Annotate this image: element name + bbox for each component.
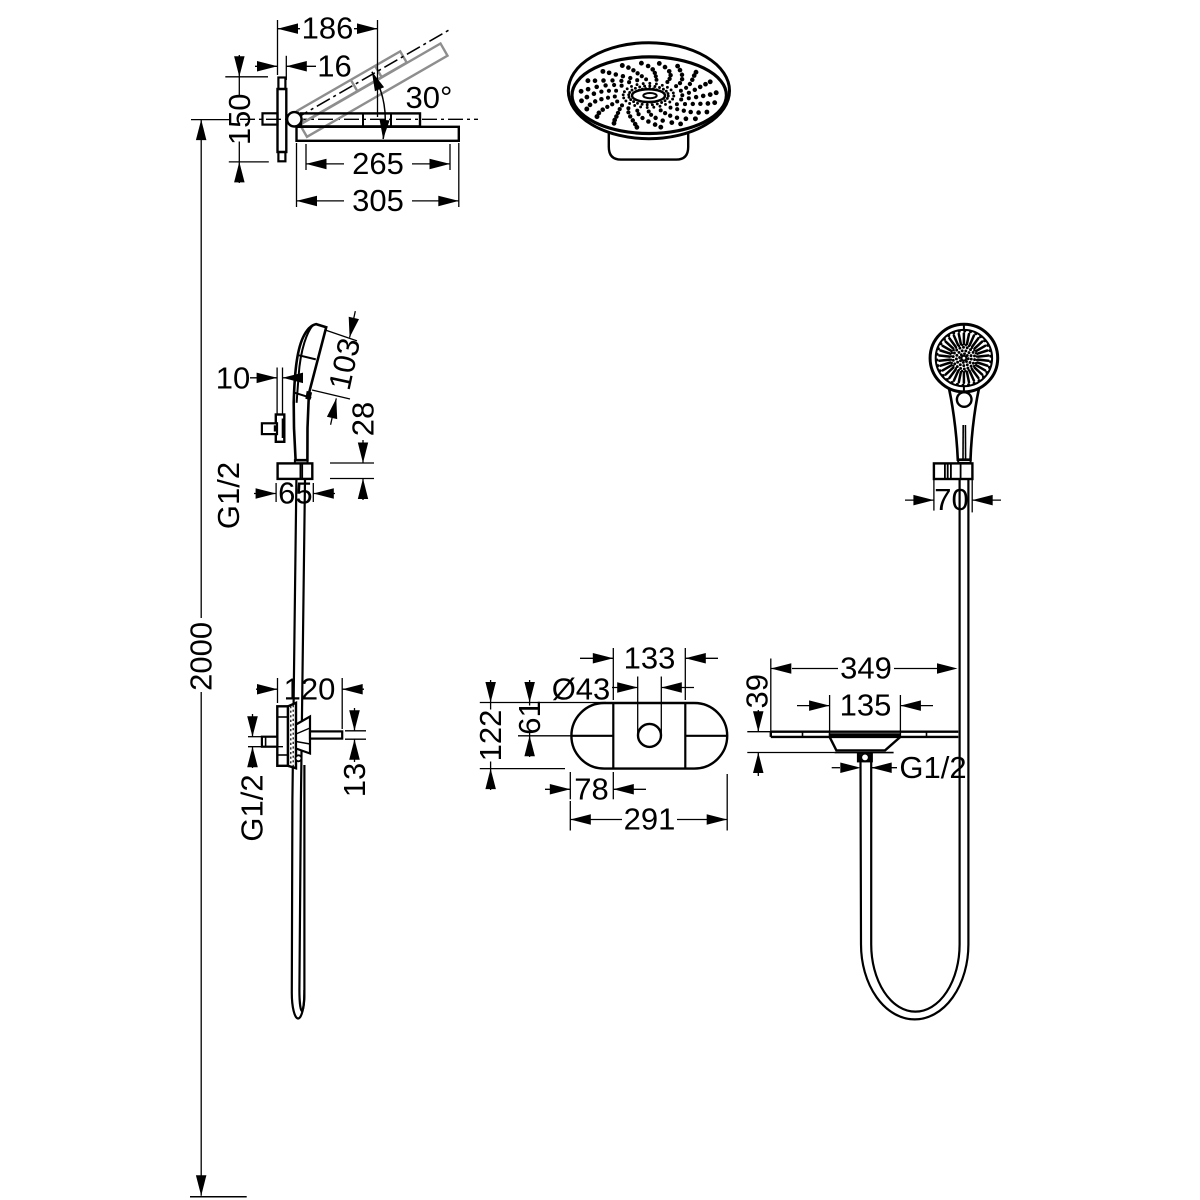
svg-text:G1/2: G1/2: [211, 462, 246, 529]
svg-text:61: 61: [512, 700, 547, 734]
svg-text:150: 150: [222, 93, 257, 145]
svg-text:10: 10: [216, 361, 250, 396]
svg-text:120: 120: [284, 671, 336, 706]
svg-text:39: 39: [739, 674, 774, 708]
svg-text:265: 265: [352, 146, 404, 181]
svg-text:291: 291: [624, 802, 676, 837]
svg-text:2000: 2000: [184, 622, 219, 691]
svg-text:133: 133: [624, 640, 676, 675]
svg-text:G1/2: G1/2: [899, 750, 966, 785]
svg-text:13: 13: [337, 763, 372, 797]
svg-text:G1/2: G1/2: [235, 774, 270, 841]
svg-text:349: 349: [840, 651, 892, 686]
svg-text:65: 65: [278, 476, 312, 511]
svg-text:Ø43: Ø43: [552, 672, 611, 707]
svg-text:135: 135: [840, 688, 892, 723]
svg-text:70: 70: [934, 482, 968, 517]
svg-text:305: 305: [352, 183, 404, 218]
svg-text:28: 28: [346, 402, 381, 436]
svg-text:122: 122: [473, 710, 508, 762]
svg-text:78: 78: [574, 771, 608, 806]
svg-text:16: 16: [317, 49, 351, 84]
svg-text:186: 186: [302, 11, 354, 46]
svg-text:103: 103: [322, 335, 367, 393]
svg-text:30°: 30°: [406, 80, 453, 115]
